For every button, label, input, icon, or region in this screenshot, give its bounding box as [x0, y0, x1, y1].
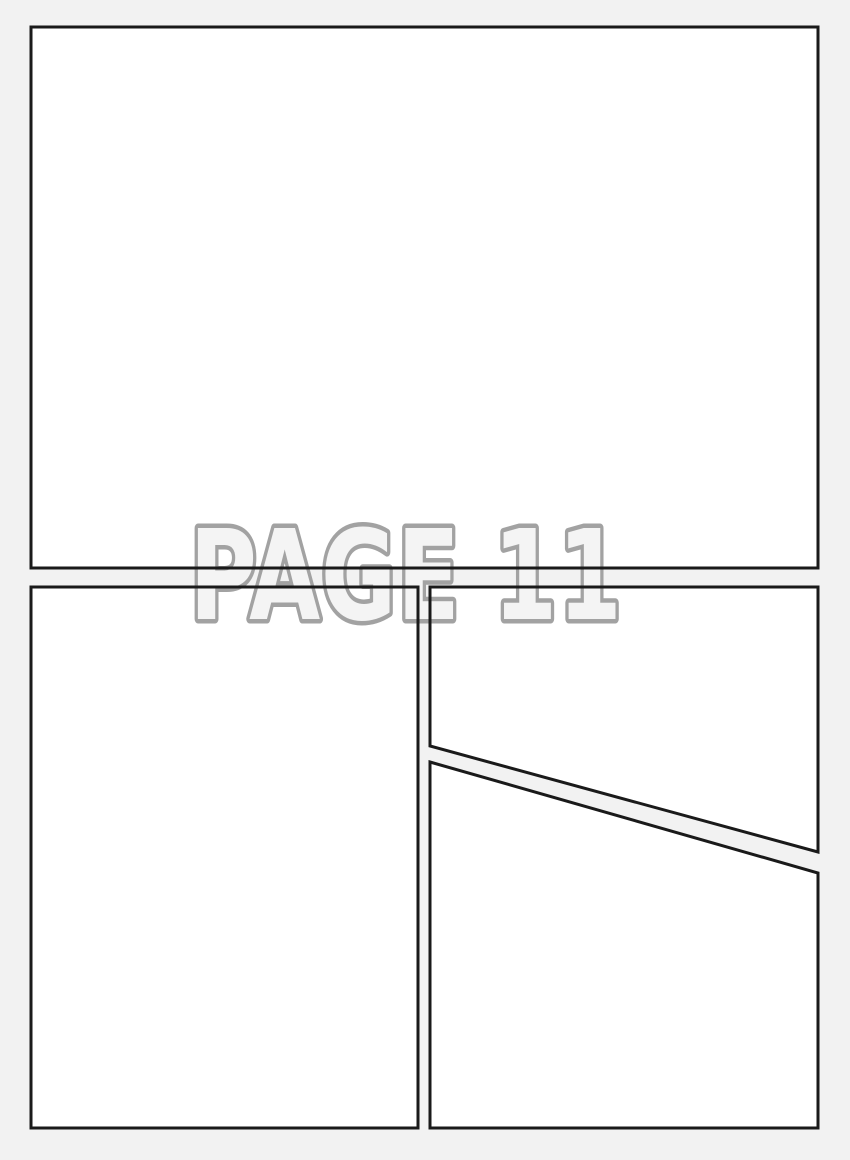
comic-page-template: PAGE 11	[0, 0, 850, 1160]
comic-page-canvas: PAGE 11	[0, 0, 850, 1160]
panel-1	[31, 27, 818, 568]
page-number-watermark: PAGE 11	[190, 504, 623, 649]
panel-2	[31, 587, 418, 1128]
